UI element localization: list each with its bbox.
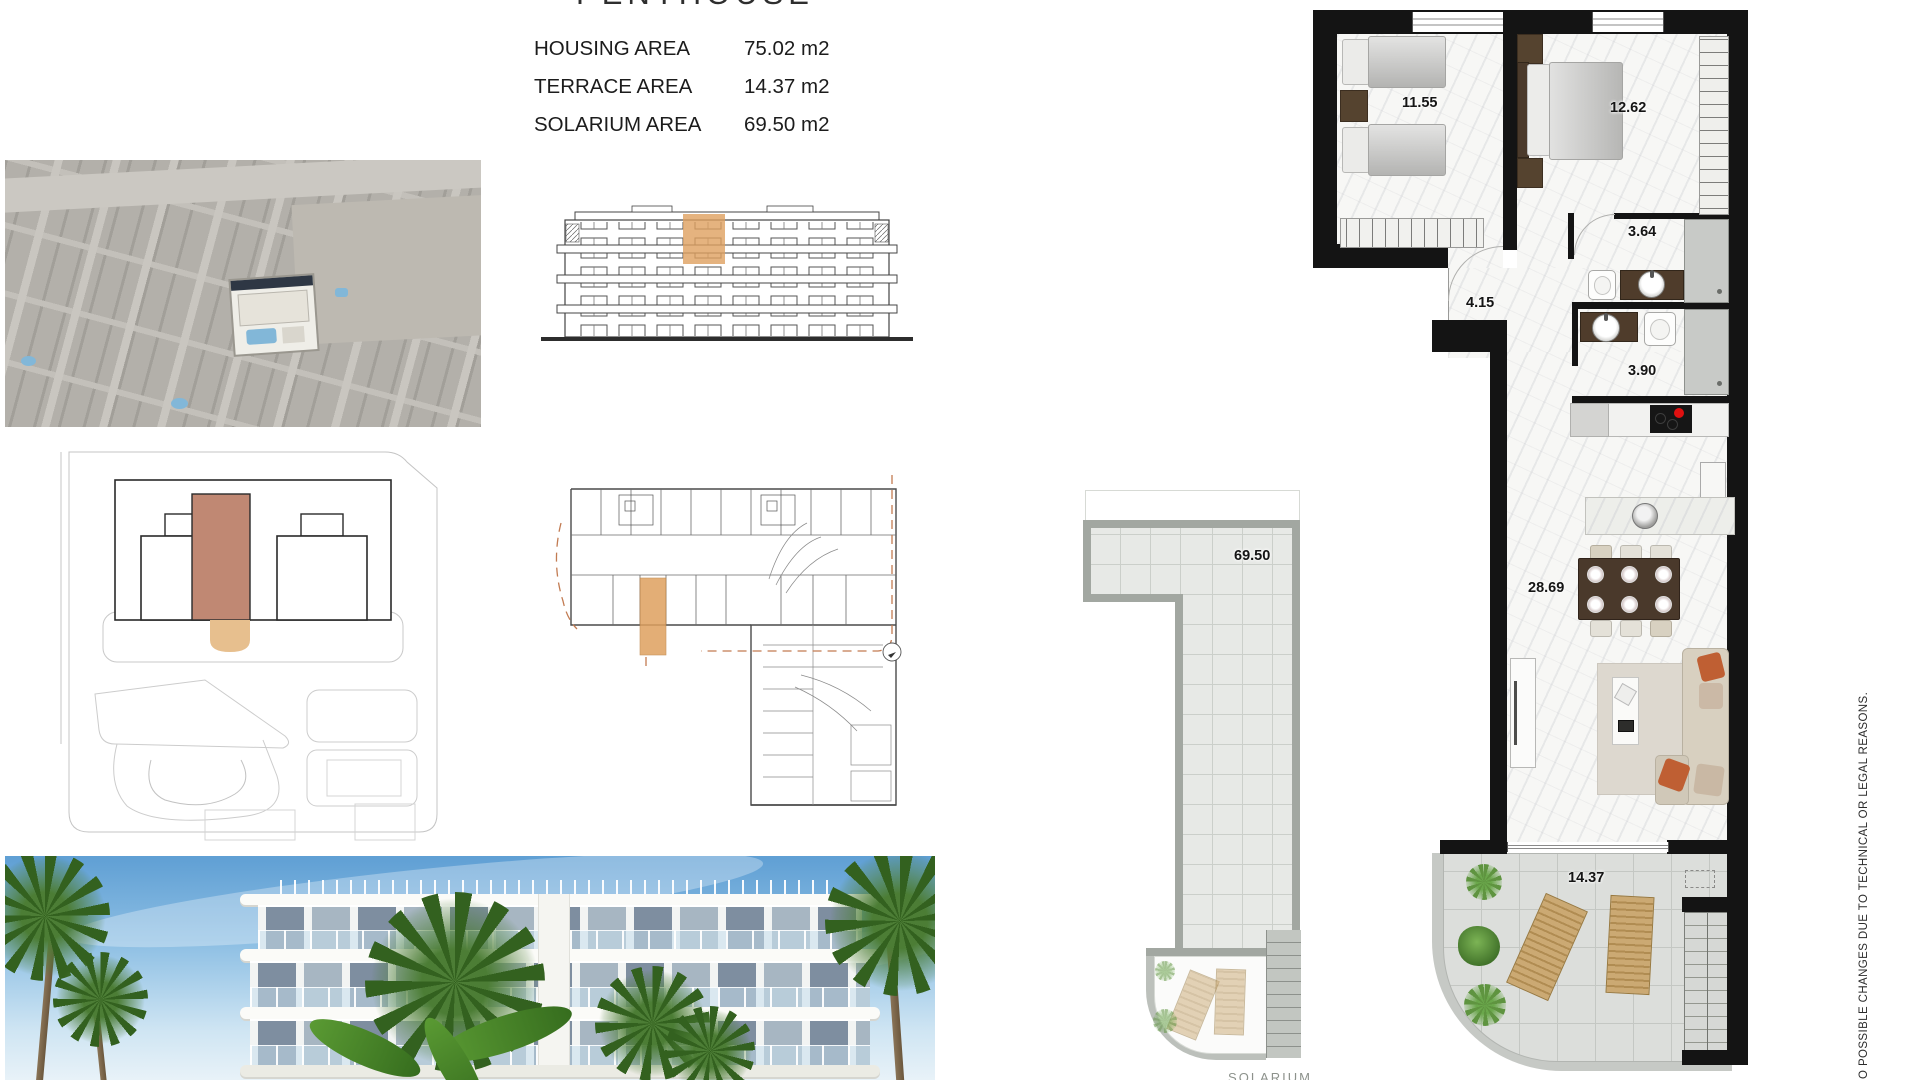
burner [1667,419,1678,430]
dining-chair [1620,620,1642,637]
penthouse-plan-sheet: PENTHOUSE HOUSING AREA 75.02 m2 TERRACE … [0,0,1920,1080]
terrace-plant [1466,864,1502,900]
dining-chair [1650,620,1672,637]
sun-lounger [1605,895,1654,995]
area-table: HOUSING AREA 75.02 m2 TERRACE AREA 14.37… [534,30,854,144]
wall-living-bottom-left [1440,840,1507,854]
coffee-table [1612,677,1639,745]
highlighted-terrace-site [210,620,250,652]
nightstand [1517,158,1543,188]
pillow [1342,39,1369,85]
floor-key-plan-drawing [551,475,936,847]
place-setting [1655,596,1672,613]
sofa-cushion [1693,763,1725,797]
neighbor-pool [21,356,36,366]
bathroom1-area-label: 3.64 [1628,224,1656,240]
single-bed [1340,36,1446,86]
solarium-floor [1183,528,1292,954]
dining-table [1578,558,1680,620]
wall-stairs-top [1682,897,1748,912]
place-setting [1587,566,1604,583]
table-decor [1618,720,1634,732]
area-value: 75.02 m2 [744,37,854,61]
building-roof [237,290,309,327]
tv [1514,681,1517,745]
terrace-plant [1464,984,1506,1026]
pillows [1527,64,1551,156]
nightstand [1517,34,1543,64]
cooktop [1650,405,1692,433]
sliding-door-terrace [1507,842,1669,852]
place-setting [1621,596,1638,613]
site-plan-drawing [55,444,455,846]
wall-bath2-left [1572,302,1578,366]
island-sink [1632,503,1658,529]
area-row-housing: HOUSING AREA 75.02 m2 [534,30,854,68]
window-twin-bedroom [1412,12,1504,32]
toilet [1644,312,1676,346]
area-value: 69.50 m2 [744,113,854,137]
place-setting [1621,566,1638,583]
disclaimer-text: O POSSIBLE CHANGES DUE TO TECHNICAL OR L… [1858,679,1873,1079]
wall-bath1-left [1568,213,1574,259]
sofa-cushion-orange [1696,651,1726,682]
place-setting [1587,596,1604,613]
neighbor-pool [171,398,188,409]
area-label: TERRACE AREA [534,75,744,99]
wall-living-bottom-right [1667,840,1748,854]
toilet [1588,270,1616,300]
burner [1655,413,1666,424]
shower [1684,219,1729,303]
wall-bedroom-divider [1503,10,1517,250]
highlighted-unit-site [192,494,250,620]
stairs-ghost [1266,930,1301,1058]
area-label: SOLARIUM AREA [534,113,744,137]
single-bed [1340,124,1446,174]
fridge [1570,403,1609,437]
solarium-roof-outline [1085,490,1300,522]
page-title: PENTHOUSE [555,0,835,12]
tv-sideboard [1510,658,1536,768]
lounger-ghost [1166,969,1220,1040]
wall-bath2-bottom [1572,396,1727,403]
skylight-dashed [1685,870,1715,888]
place-setting [1655,566,1672,583]
site-pool [246,328,277,345]
sofa [1682,648,1729,805]
building-elevation-drawing [537,205,917,350]
lounger-ghost [1214,968,1246,1035]
highlighted-penthouse-unit [683,214,725,264]
bathroom2-area-label: 3.90 [1628,363,1656,379]
solarium-area-label: 69.50 [1234,548,1270,564]
wall-hall-jog [1432,320,1507,352]
terrace-area-label: 14.37 [1568,870,1604,886]
building-photo [5,856,935,1080]
wardrobe [1699,36,1729,215]
highlighted-unit-keyplan [640,578,666,655]
north-arrow-icon [883,643,901,661]
wall-top [1313,10,1748,34]
site-deck [282,326,305,343]
wall-stairs-bottom [1682,1050,1748,1065]
area-label: HOUSING AREA [534,37,744,61]
living-area-label: 28.69 [1528,580,1564,596]
mattress [1368,124,1446,176]
area-row-solarium: SOLARIUM AREA 69.50 m2 [534,106,854,144]
plant-ghost [1153,1009,1177,1033]
palm-tree [53,952,148,1047]
aerial-photo [5,160,481,427]
neighbor-pool [335,288,348,297]
stairs-to-solarium [1684,912,1729,1052]
master-bedroom-area-label: 12.62 [1610,100,1646,116]
shower [1684,309,1729,395]
nightstand [1340,90,1368,122]
mattress [1368,36,1446,88]
solarium-caption: SOLARIUM [1205,1070,1335,1080]
wardrobe [1340,218,1484,248]
development-building [231,275,318,355]
kitchen-appliance [1700,462,1726,498]
area-row-terrace: TERRACE AREA 14.37 m2 [534,68,854,106]
kitchen-island [1585,497,1735,535]
area-value: 14.37 m2 [744,75,854,99]
hallway-area-label: 4.15 [1466,295,1494,311]
burner-on-indicator [1674,408,1684,418]
terrace-bush [1458,926,1500,966]
sink [1638,271,1665,298]
sink [1592,314,1620,342]
plant-ghost [1155,961,1175,981]
construction-site-ground [291,195,481,345]
dining-chair [1590,620,1612,637]
twin-bedroom-area-label: 11.55 [1402,95,1438,111]
base-slab [240,1065,880,1077]
pillow [1342,127,1369,173]
sofa-cushion [1699,683,1723,709]
table-decor [1614,683,1637,706]
wall-living-left [1490,352,1507,845]
window-master-bedroom [1592,12,1664,32]
wall-left [1313,10,1337,268]
wall-between-baths [1572,302,1727,309]
